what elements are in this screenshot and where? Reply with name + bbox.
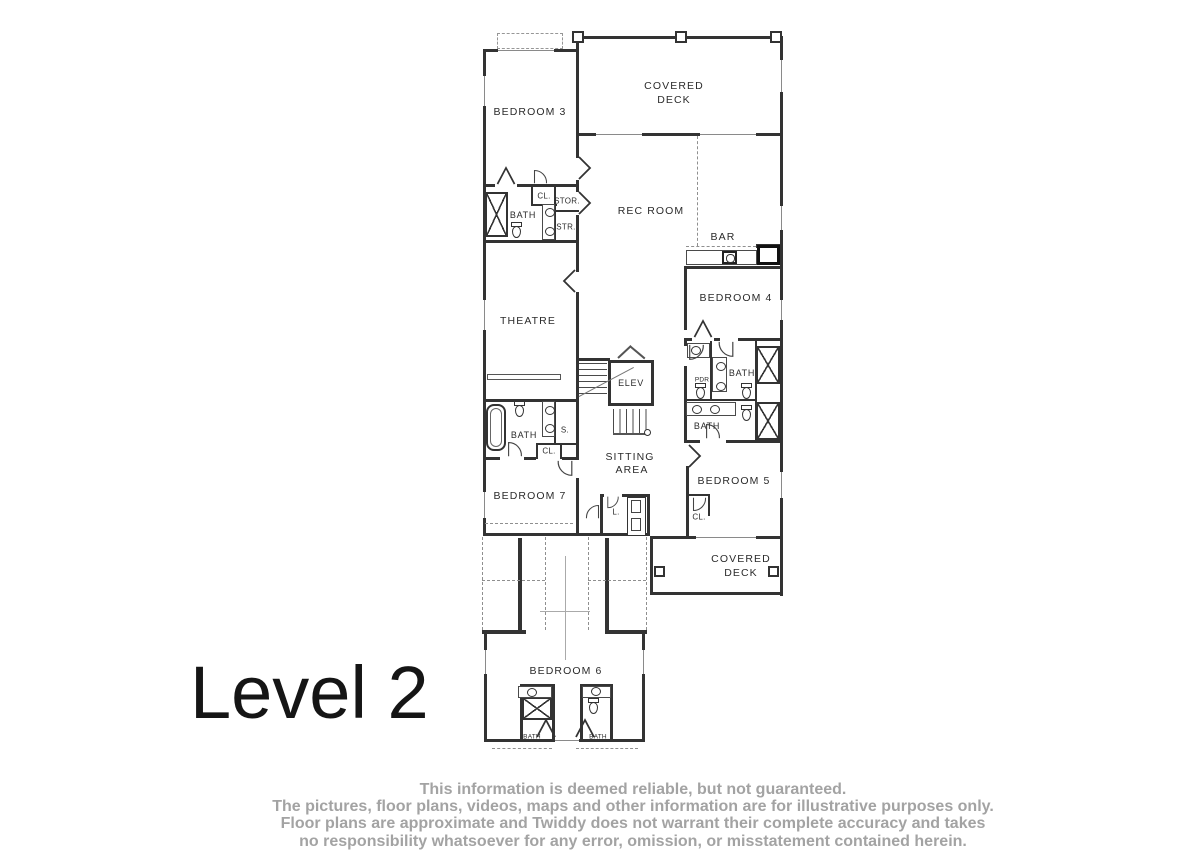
page-title: Level 2: [190, 656, 429, 730]
wall: [576, 36, 579, 158]
wall: [484, 630, 487, 742]
disclaimer-line: no responsibility whatsoever for any err…: [133, 833, 1133, 850]
wall: [686, 494, 708, 496]
room-label-covered-deck-top: COVERED: [644, 80, 704, 92]
wall: [554, 210, 579, 212]
disclaimer: This information is deemed reliable, but…: [133, 781, 1133, 850]
deck-post: [654, 566, 665, 577]
wall: [483, 457, 500, 460]
sink-icon: [692, 405, 702, 414]
wall: [605, 538, 609, 632]
wall: [576, 215, 579, 242]
wall: [684, 268, 687, 330]
dashed-line: [482, 537, 483, 630]
dashed-line: [588, 537, 589, 630]
door-swing: [578, 156, 591, 180]
room-label-covered-deck-bottom: COVERED: [711, 553, 771, 565]
wall: [578, 358, 610, 361]
toilet-icon: [510, 222, 523, 239]
door-swing: [688, 444, 701, 468]
dashed-line: [588, 580, 646, 581]
room-label-bedroom-7: BEDROOM 7: [494, 490, 567, 502]
shower-icon: [485, 192, 508, 237]
bathtub-icon: [486, 404, 506, 451]
door-swing: [495, 166, 517, 185]
door-swing: [563, 269, 576, 293]
wall: [536, 443, 538, 459]
wall: [482, 630, 526, 634]
room-label-linen: L.: [612, 508, 619, 517]
sink-icon: [716, 362, 726, 371]
room-label-storage: STOR.: [554, 197, 580, 206]
room-label-bath: BATH: [510, 210, 536, 220]
window: [555, 739, 579, 742]
wall: [483, 399, 579, 402]
room-label-storage: STR.: [556, 223, 575, 232]
sink-icon: [545, 208, 555, 217]
room-label-powder: PDR: [695, 377, 709, 384]
stair-railing: [613, 433, 647, 435]
door-arc: [585, 503, 600, 520]
dashed-line: [646, 537, 647, 630]
bar-sink-icon: [722, 251, 737, 264]
toilet-icon: [740, 383, 753, 400]
wall: [686, 496, 689, 536]
window: [483, 76, 486, 106]
disclaimer-line: Floor plans are approximate and Twiddy d…: [133, 815, 1133, 832]
window: [700, 133, 756, 136]
sink-icon: [545, 406, 555, 415]
wall: [647, 494, 650, 536]
room-label-sitting-area: AREA: [616, 464, 649, 476]
sink-icon: [716, 382, 726, 391]
room-label-elevator: ELEV: [618, 378, 644, 388]
dashed-bay-outline: [497, 33, 563, 49]
sink-icon: [591, 687, 601, 696]
door-arc: [555, 460, 575, 477]
room-label-bath: BATH: [589, 734, 607, 741]
railing-newel: [644, 429, 651, 436]
wall: [650, 536, 653, 595]
wall: [531, 184, 533, 206]
wall: [650, 592, 783, 595]
door-arc: [692, 497, 707, 512]
window: [642, 650, 645, 674]
door-swing: [692, 319, 714, 338]
refrigerator-icon: [757, 245, 780, 265]
washer-dryer-icon: [627, 497, 646, 536]
sink-icon: [545, 424, 555, 433]
window: [780, 300, 783, 320]
toilet-icon: [740, 405, 753, 422]
dashed-line: [492, 748, 552, 749]
room-label-bar: BAR: [711, 231, 736, 243]
roof-ridge-line: [565, 556, 566, 660]
window: [780, 472, 783, 498]
room-label-bedroom-6: BEDROOM 6: [530, 665, 603, 677]
wall: [576, 242, 579, 272]
dashed-line: [545, 537, 546, 630]
wall: [684, 266, 783, 269]
room-label-bath: BATH: [729, 368, 755, 378]
wall: [483, 184, 495, 187]
wall: [576, 478, 579, 536]
wall: [483, 49, 486, 536]
disclaimer-line: This information is deemed reliable, but…: [133, 781, 1133, 798]
room-label-shower: S.: [561, 426, 569, 435]
disclaimer-line: The pictures, floor plans, videos, maps …: [133, 798, 1133, 815]
dashed-line: [697, 136, 698, 246]
theatre-screen: [487, 374, 561, 380]
room-label-bedroom-5: BEDROOM 5: [698, 475, 771, 487]
toilet-icon: [694, 383, 707, 400]
room-label-bath: BATH: [694, 421, 720, 431]
window: [483, 492, 486, 518]
window: [483, 300, 486, 330]
window: [780, 206, 783, 230]
wall: [576, 292, 579, 360]
dashed-line: [576, 748, 638, 749]
shower-icon: [756, 402, 780, 440]
sink-icon: [710, 405, 720, 414]
room-label-covered-deck-bottom: DECK: [724, 567, 758, 579]
dashed-line: [485, 523, 573, 524]
room-label-bath: BATH: [511, 430, 537, 440]
window: [498, 49, 554, 52]
wall: [536, 443, 562, 445]
wall: [560, 443, 562, 459]
deck-post: [770, 31, 782, 43]
elevator-door-line: [630, 346, 645, 359]
roof-ridge-line: [540, 611, 590, 612]
window: [780, 60, 783, 92]
deck-post: [572, 31, 584, 43]
room-label-closet: CL.: [537, 192, 550, 201]
room-label-bath: BATH: [523, 734, 541, 741]
wall: [684, 440, 700, 443]
room-label-covered-deck-top: DECK: [657, 94, 691, 106]
window: [596, 133, 642, 136]
sink-icon: [545, 227, 555, 236]
deck-post: [675, 31, 687, 43]
wall: [524, 457, 536, 460]
window: [696, 536, 756, 539]
shower-icon: [756, 346, 780, 384]
deck-post: [768, 566, 779, 577]
sink-icon: [527, 688, 537, 697]
door-arc: [716, 341, 736, 358]
wall: [686, 466, 689, 496]
window: [484, 650, 487, 674]
room-label-closet: CL.: [542, 447, 555, 456]
room-label-closet: CL.: [692, 513, 705, 522]
dashed-line: [686, 246, 756, 247]
floor-plan-page: BEDROOM 3 COVERED DECK REC ROOM BAR CL. …: [0, 0, 1200, 850]
door-arc: [505, 441, 525, 457]
room-label-bedroom-4: BEDROOM 4: [700, 292, 773, 304]
door-arc: [688, 344, 705, 361]
door-swing: [578, 191, 591, 215]
wall: [708, 494, 710, 516]
wall: [483, 533, 579, 536]
room-label-bedroom-3: BEDROOM 3: [494, 106, 567, 118]
washer-door: [631, 500, 641, 513]
door-arc: [533, 169, 548, 184]
wall: [642, 630, 645, 742]
wall: [605, 630, 647, 634]
toilet-icon: [513, 401, 526, 418]
room-label-rec-room: REC ROOM: [618, 205, 685, 217]
room-label-theatre: THEATRE: [500, 315, 556, 327]
wall: [483, 240, 579, 243]
dryer-door: [631, 518, 641, 531]
room-label-sitting-area: SITTING: [605, 451, 654, 463]
wall: [518, 538, 522, 632]
wall: [517, 184, 579, 187]
wall: [600, 494, 603, 536]
dashed-line: [482, 580, 545, 581]
wall: [738, 338, 783, 341]
toilet-icon: [587, 698, 600, 715]
wall: [726, 440, 783, 443]
wall: [576, 398, 579, 460]
